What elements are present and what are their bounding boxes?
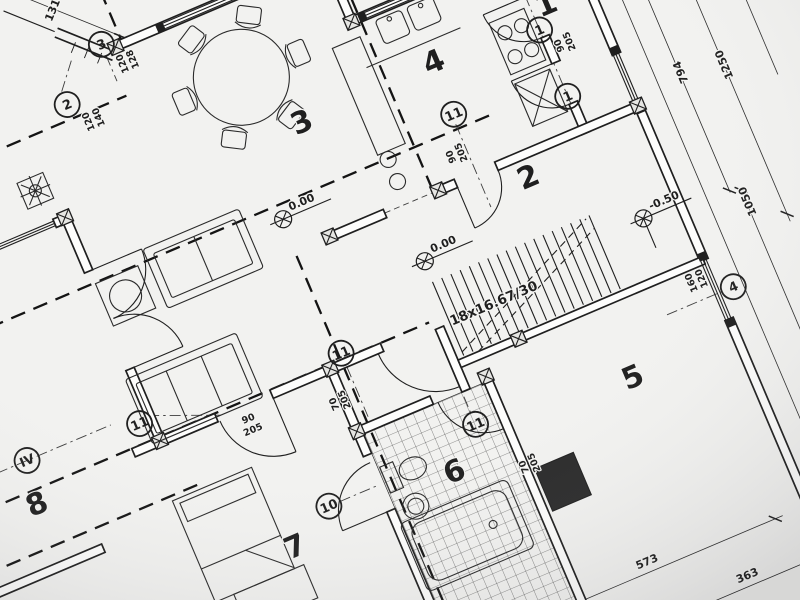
blueprint-svg: 794 1250 1050 573 363 131 [0, 0, 800, 600]
blueprint-photo: 794 1250 1050 573 363 131 [0, 0, 800, 600]
